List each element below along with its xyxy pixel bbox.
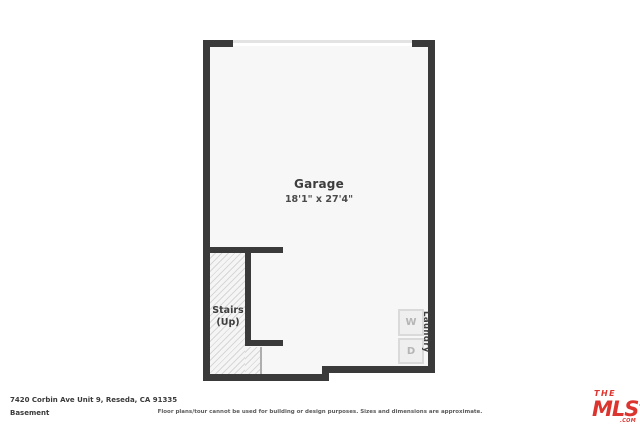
garage-door-line xyxy=(233,40,412,43)
bottom-wall-left xyxy=(203,374,329,381)
washer-label: W xyxy=(405,317,416,328)
floor-plan: Garage 18'1" x 27'4" Stairs (Up) W D Lau… xyxy=(0,0,640,427)
stairs-mid-wall xyxy=(245,340,283,346)
stairs-edge-line xyxy=(260,347,262,374)
footer-disclaimer: Floor plans/tour cannot be used for buil… xyxy=(0,409,640,415)
dryer-label: D xyxy=(407,346,415,357)
stairs-right-wall xyxy=(245,247,251,346)
left-wall xyxy=(203,40,210,381)
mls-logo-mls: MLS™ xyxy=(592,398,636,418)
stairs-label: Stairs (Up) xyxy=(201,305,255,329)
laundry-label: Laundry xyxy=(421,311,431,373)
room-dimensions: 18'1" x 27'4" xyxy=(210,194,428,205)
top-wall-left xyxy=(203,40,233,47)
garage-room-label: Garage 18'1" x 27'4" xyxy=(210,177,428,205)
room-name: Garage xyxy=(210,177,428,191)
mls-logo: THE MLS™ .COM xyxy=(592,390,636,424)
bottom-wall-right xyxy=(328,366,435,373)
stairs-label-line1: Stairs xyxy=(201,305,255,317)
stairs-label-line2: (Up) xyxy=(201,317,255,329)
stairs-landing xyxy=(245,347,260,374)
footer-address: 7420 Corbin Ave Unit 9, Reseda, CA 91335 xyxy=(10,396,177,404)
